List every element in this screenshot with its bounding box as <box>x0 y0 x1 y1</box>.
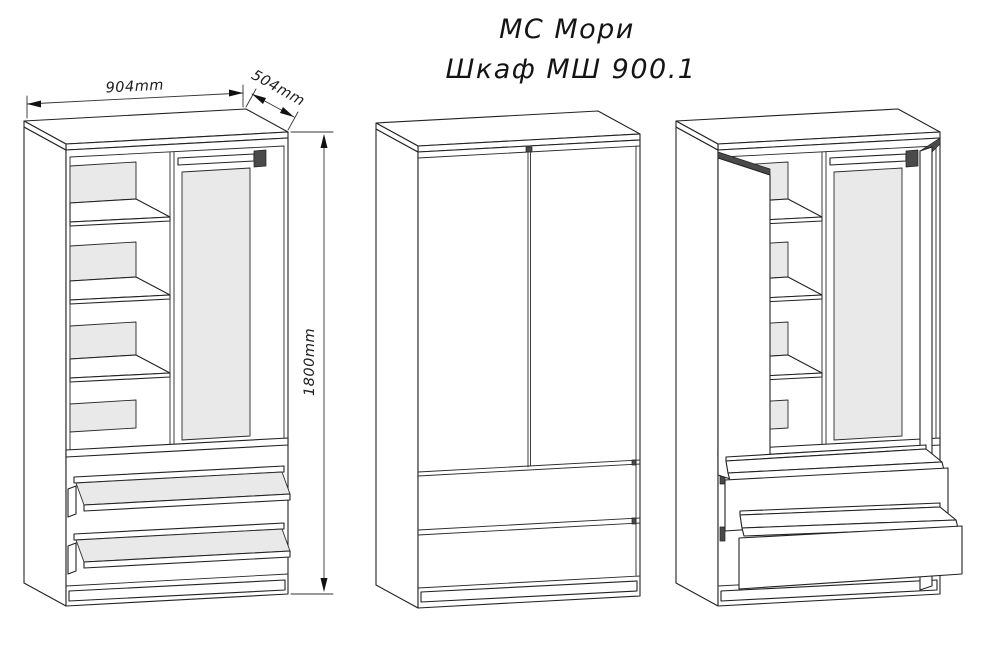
view-closed-front <box>376 111 640 608</box>
drawer-side-cap <box>68 486 76 517</box>
arrowhead <box>321 134 328 148</box>
arrowhead <box>27 101 41 108</box>
height-dimension: 1800mm <box>291 132 333 594</box>
back-panel <box>70 322 136 359</box>
back-panel <box>70 242 136 281</box>
drawing-title-line2: Шкаф МШ 900.1 <box>446 54 697 85</box>
back-panel <box>182 168 250 440</box>
gap-shadow-mark <box>632 460 636 465</box>
view-carcass-dimensioned: 904mm 504mm 1800mm <box>24 67 333 606</box>
arrowhead <box>321 578 328 592</box>
furniture-technical-drawing: МС Мори Шкаф МШ 900.1 <box>0 0 1000 645</box>
side-panel <box>24 127 66 606</box>
gap-shadow-mark <box>632 518 636 524</box>
depth-dimension-label: 504mm <box>249 67 308 109</box>
carcass-front <box>418 140 640 608</box>
arrowhead <box>252 94 266 104</box>
drawer-runner <box>720 527 725 541</box>
door-gap-top-mark <box>526 147 532 152</box>
door-panel <box>718 158 770 492</box>
drawer-side-cap <box>68 543 76 574</box>
back-panel <box>70 400 136 432</box>
rod-bracket <box>254 150 266 167</box>
back-panel <box>834 168 902 440</box>
side-panel <box>676 127 718 606</box>
width-dimension-label: 904mm <box>105 77 164 96</box>
rod-bracket <box>906 150 918 167</box>
arrowhead <box>229 90 243 97</box>
side-panel <box>376 129 418 608</box>
back-panel <box>70 162 136 203</box>
drawing-title-line1: МС Мори <box>499 14 635 45</box>
arrowhead <box>280 107 294 117</box>
height-dimension-label: 1800mm <box>302 328 318 396</box>
drawer-open <box>739 503 962 589</box>
left-door-open <box>718 152 770 492</box>
view-doors-open <box>676 109 962 606</box>
